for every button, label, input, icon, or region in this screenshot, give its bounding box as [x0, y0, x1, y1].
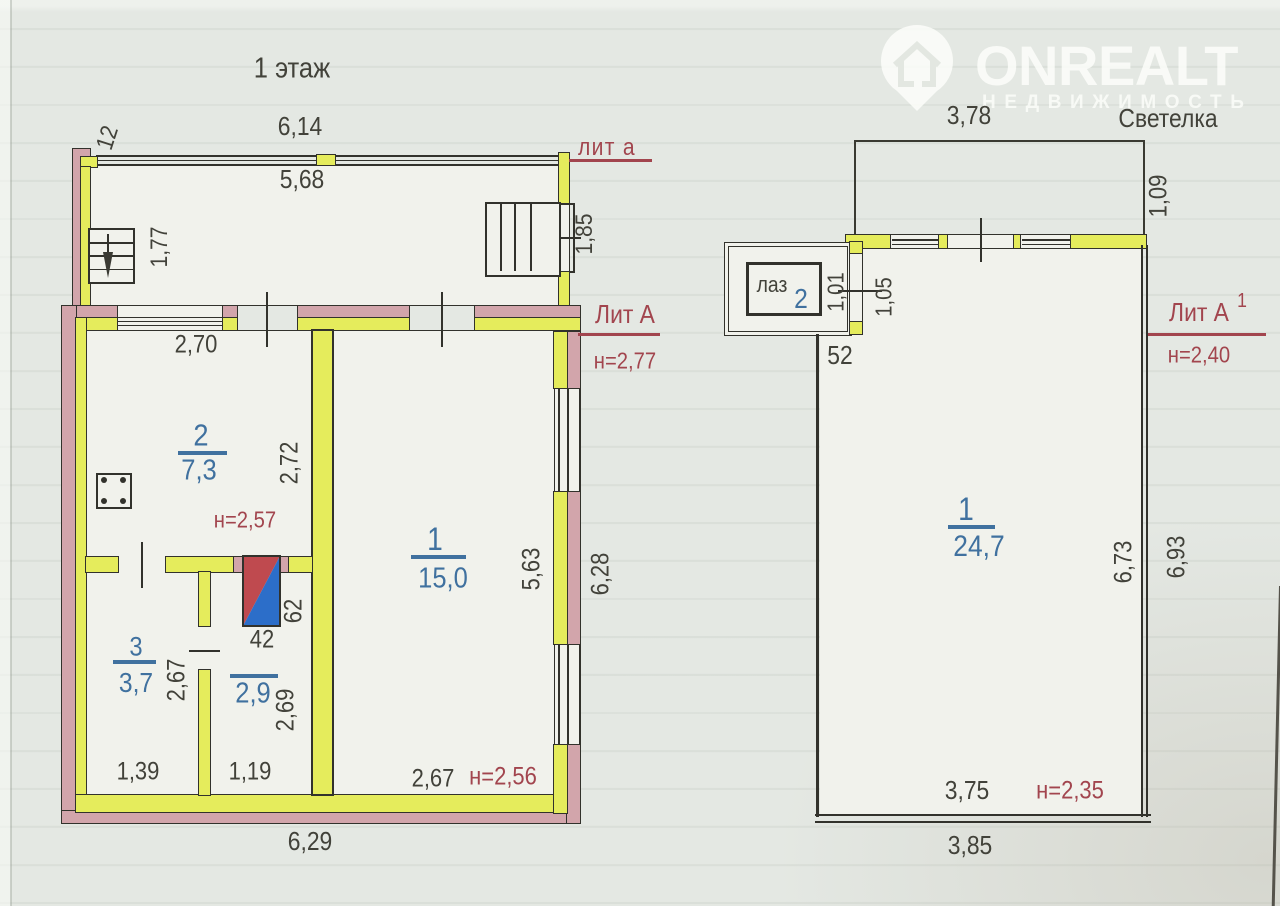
- svg-text:ONREALT: ONREALT: [975, 34, 1238, 97]
